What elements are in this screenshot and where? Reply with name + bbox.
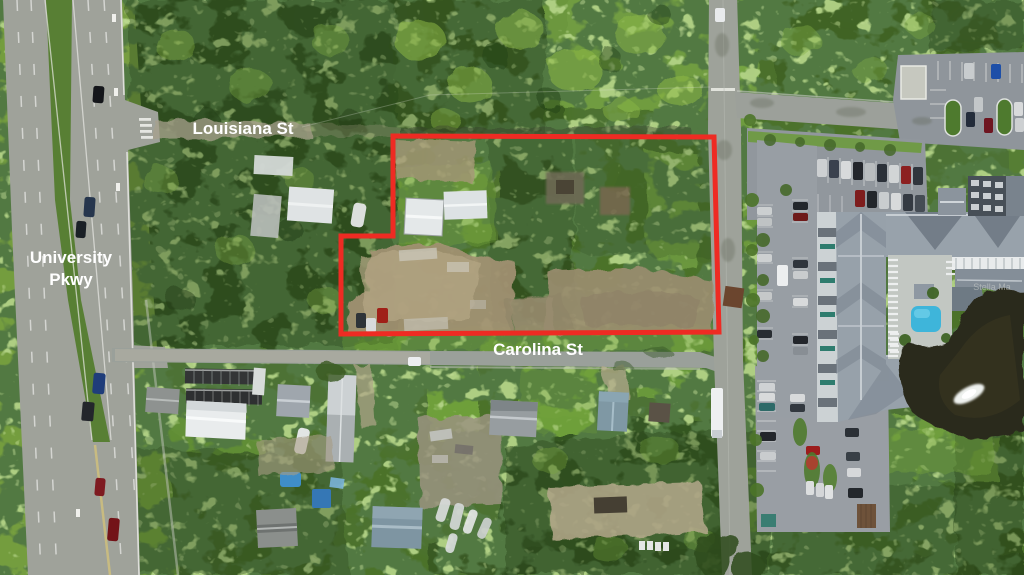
svg-text:Stella Ma: Stella Ma: [973, 282, 1011, 292]
svg-text:Louisiana St: Louisiana St: [192, 119, 293, 138]
svg-text:University: University: [30, 248, 113, 267]
svg-text:Carolina St: Carolina St: [493, 340, 583, 359]
svg-text:Pkwy: Pkwy: [49, 270, 93, 289]
